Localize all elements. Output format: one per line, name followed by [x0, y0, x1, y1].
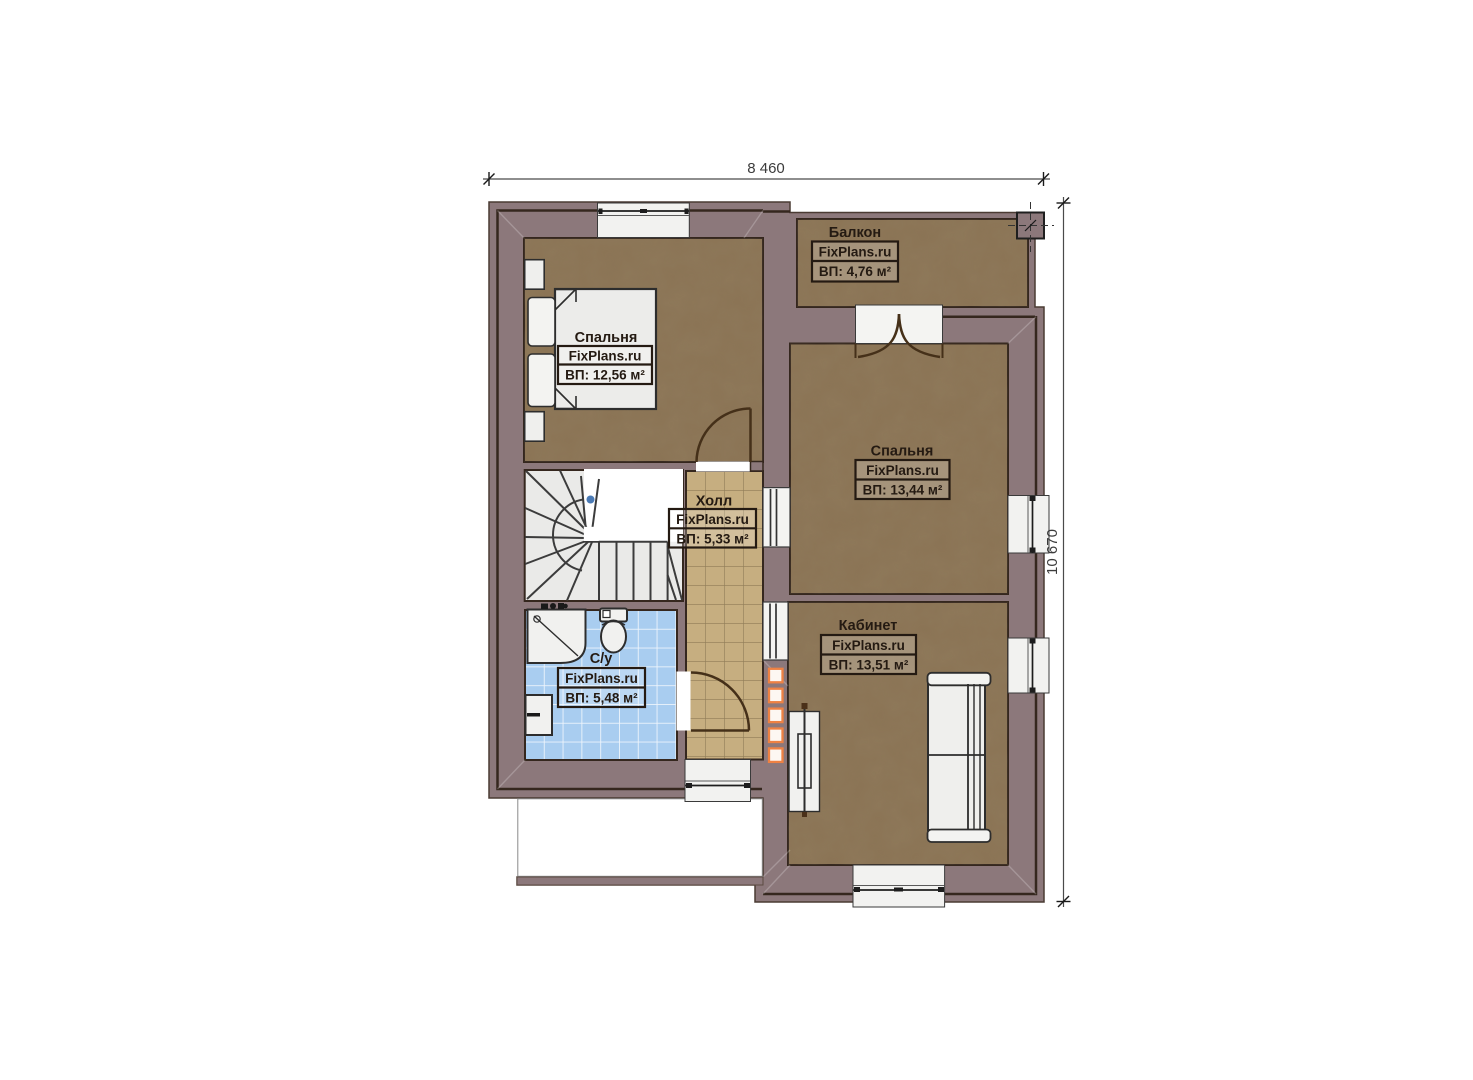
svg-text:FixPlans.ru: FixPlans.ru: [819, 245, 892, 260]
svg-text:Балкон: Балкон: [829, 225, 881, 241]
svg-text:FixPlans.ru: FixPlans.ru: [866, 463, 939, 478]
svg-text:FixPlans.ru: FixPlans.ru: [565, 671, 638, 686]
svg-text:Холл: Холл: [696, 494, 732, 510]
svg-text:ВП: 13,44 м²: ВП: 13,44 м²: [863, 483, 943, 498]
svg-text:10 670: 10 670: [1044, 529, 1061, 575]
svg-text:ВП: 4,76 м²: ВП: 4,76 м²: [819, 264, 892, 279]
svg-text:ВП: 13,51 м²: ВП: 13,51 м²: [829, 658, 909, 673]
svg-text:FixPlans.ru: FixPlans.ru: [569, 349, 642, 364]
svg-text:Кабинет: Кабинет: [839, 618, 898, 634]
svg-text:С/у: С/у: [590, 651, 613, 667]
svg-text:8 460: 8 460: [747, 160, 785, 177]
svg-text:FixPlans.ru: FixPlans.ru: [676, 512, 749, 527]
svg-text:ВП: 12,56 м²: ВП: 12,56 м²: [565, 368, 645, 383]
svg-text:Спальня: Спальня: [575, 330, 638, 346]
svg-text:ВП: 5,33 м²: ВП: 5,33 м²: [676, 532, 749, 547]
svg-text:FixPlans.ru: FixPlans.ru: [832, 638, 905, 653]
svg-text:ВП: 5,48 м²: ВП: 5,48 м²: [565, 691, 638, 706]
svg-text:Спальня: Спальня: [871, 444, 934, 460]
